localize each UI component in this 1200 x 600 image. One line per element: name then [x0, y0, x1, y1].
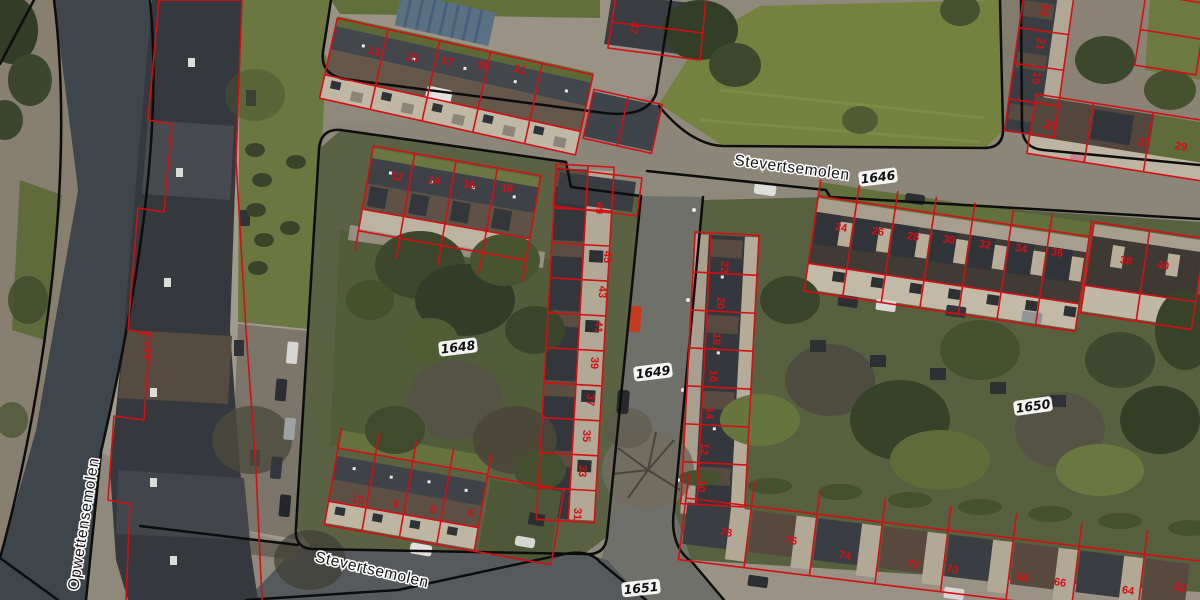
- house-number-label: 18: [500, 182, 514, 196]
- house-number-label: 19: [1029, 71, 1043, 85]
- house-number-label: 68: [1015, 571, 1029, 585]
- house-number-label: 31: [571, 508, 583, 521]
- house-number-label: 49: [593, 202, 605, 215]
- house-number-label: 32: [978, 238, 992, 252]
- house-number-label: 29: [1174, 140, 1188, 154]
- house-number-label: 13: [367, 45, 381, 59]
- map-viewport[interactable]: 1315171921471214161849454341393735333110…: [0, 0, 1200, 600]
- house-number-label: 28: [906, 230, 920, 244]
- house-number-label: 12: [698, 443, 711, 456]
- house-number-label: 38: [1119, 254, 1133, 268]
- house-number-label: 43: [596, 286, 608, 299]
- aerial-cadastral-map: 1315171921471214161849454341393735333110…: [0, 0, 1200, 600]
- house-number-label: 21: [513, 63, 527, 77]
- range-label-layer: 2-144: [139, 330, 153, 360]
- house-number-label: 78: [719, 526, 733, 540]
- house-number-label: 76: [784, 534, 798, 548]
- house-number-label: 19: [476, 59, 490, 73]
- house-number-label: 41: [592, 321, 604, 334]
- house-number-label: 22: [718, 261, 731, 274]
- house-number-label: 20: [714, 297, 727, 310]
- house-number-label: 26: [871, 225, 885, 239]
- house-number-label: 25: [1043, 119, 1057, 133]
- house-number-label: 23: [1037, 3, 1051, 17]
- house-number-label: 30: [942, 233, 956, 247]
- house-number-label: 18: [710, 333, 723, 346]
- house-number-label: 39: [588, 357, 600, 370]
- house-number-label: 16: [707, 370, 720, 383]
- house-number-label: 70: [945, 563, 959, 577]
- house-number-label: 16: [462, 178, 476, 192]
- house-number-label: 14: [703, 407, 716, 421]
- house-number-label: 45: [601, 251, 613, 264]
- house-number-label: 17: [440, 55, 454, 69]
- house-number-label: 47: [627, 21, 641, 35]
- house-number-label: 15: [405, 51, 419, 65]
- house-number-range-label: 2-144: [139, 330, 153, 360]
- house-number-label: 27: [1137, 136, 1151, 150]
- house-number-label: 33: [576, 465, 588, 478]
- house-number-label: 10: [695, 480, 708, 493]
- house-number-label: 66: [1053, 576, 1067, 590]
- house-number-label: 10: [351, 493, 365, 507]
- house-number-label: 37: [584, 394, 596, 407]
- house-number-label: 12: [390, 170, 404, 184]
- house-number-label: 36: [1050, 246, 1064, 260]
- house-number-label: 72: [906, 558, 920, 572]
- house-number-label: 62: [1173, 581, 1187, 595]
- house-number-label: 35: [580, 430, 592, 443]
- house-number-label: 40: [1156, 259, 1170, 273]
- house-number-label: 21: [1033, 37, 1047, 51]
